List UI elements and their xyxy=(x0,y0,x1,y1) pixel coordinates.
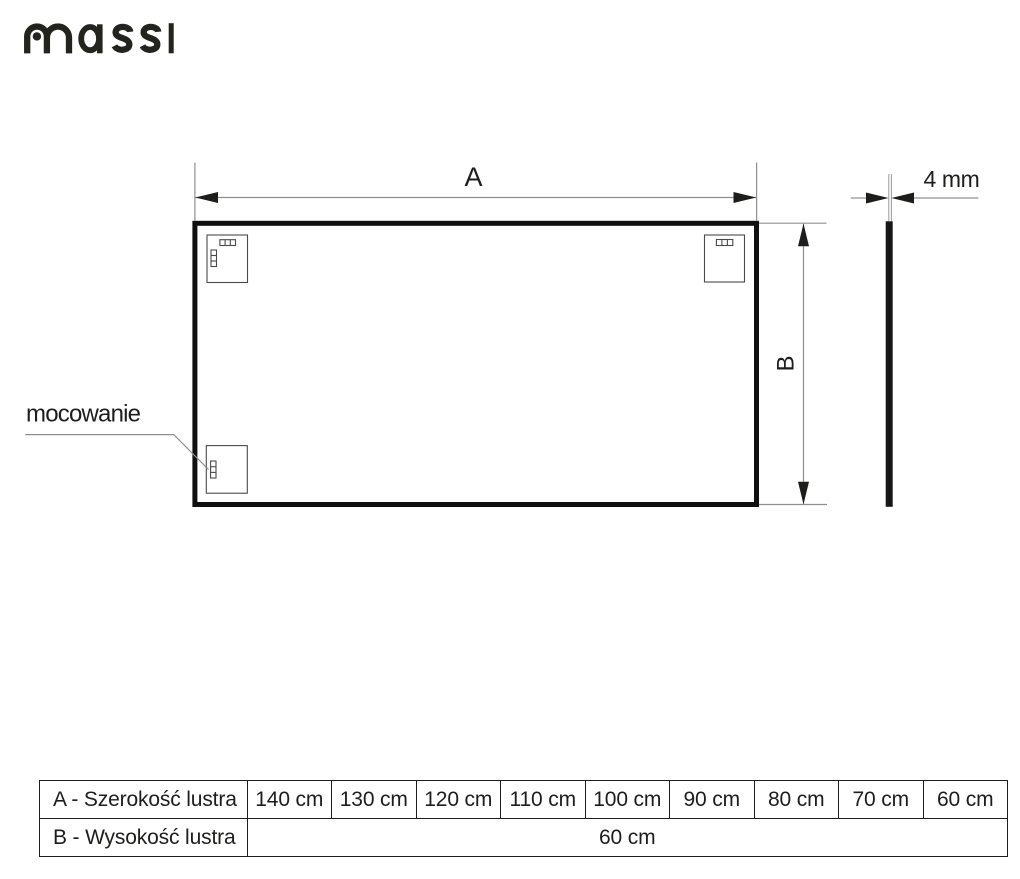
svg-text:mocowanie: mocowanie xyxy=(26,401,141,428)
svg-text:4 mm: 4 mm xyxy=(924,166,980,192)
svg-text:A: A xyxy=(464,162,482,192)
svg-text:B: B xyxy=(772,355,799,371)
